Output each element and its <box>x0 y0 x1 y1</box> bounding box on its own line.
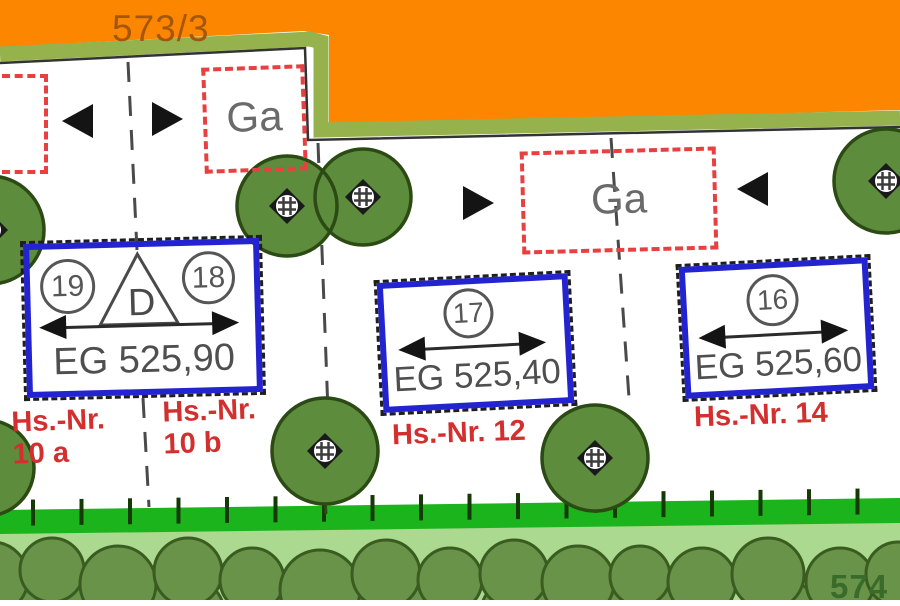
building-window-border: 17 EG 525,40 <box>377 273 575 413</box>
house-number-line: 10 a <box>12 436 107 471</box>
floor-elevation-label: EG 525,90 <box>32 336 257 385</box>
plot-number-badge: 16 <box>745 273 800 328</box>
house-number-label-10a: Hs.-Nr. 10 a <box>11 404 107 471</box>
access-arrow-right-icon <box>152 102 183 136</box>
arrow-head-right-icon <box>212 310 240 335</box>
building-window-border: 19 D 18 EG 525,90 <box>23 238 263 398</box>
floor-elevation-label: EG 525,40 <box>387 351 568 400</box>
building-window-house-12: 17 EG 525,40 <box>374 270 578 416</box>
building-window-house-14: 16 EG 525,60 <box>676 254 878 402</box>
plot-number-badge: 19 <box>39 258 95 314</box>
building-window-border: 16 EG 525,60 <box>679 257 875 399</box>
parcel-number-label: 573/3 <box>112 8 210 50</box>
garage-outline-middle: Ga <box>520 146 719 254</box>
building-extent-arrow <box>39 310 240 339</box>
plot-number-badge: 17 <box>442 287 495 340</box>
arrow-shaft <box>47 321 231 329</box>
garage-outline-top: Ga <box>201 64 308 174</box>
site-plan: { "labels": { "parcel_top": "573/3", "pa… <box>0 0 900 600</box>
house-number-line: Hs.-Nr. <box>11 404 106 439</box>
house-number-line: 10 b <box>163 426 258 461</box>
arrow-head-left-icon <box>39 315 67 340</box>
house-number-label-12: Hs.-Nr. 12 <box>391 416 526 453</box>
parcel-number-label-clipped: 574 <box>830 568 888 606</box>
access-arrow-left-icon <box>737 172 768 206</box>
plot-number-badge: 18 <box>181 251 235 305</box>
access-arrow-right-icon <box>463 186 494 220</box>
garage-outline-partial <box>0 74 48 174</box>
building-window-house-10: 19 D 18 EG 525,90 <box>20 235 266 401</box>
house-number-line: Hs.-Nr. <box>162 394 257 429</box>
house-number-label-10b: Hs.-Nr. 10 b <box>162 394 258 461</box>
garage-label: Ga <box>524 172 713 225</box>
floor-elevation-label: EG 525,60 <box>689 339 868 388</box>
access-arrow-left-icon <box>62 104 93 138</box>
plan-overlay: 573/3 Ga Ga 19 D 18 EG 525,90 <box>0 0 900 600</box>
house-number-label-14: Hs.-Nr. 14 <box>693 398 828 435</box>
garage-label: Ga <box>206 91 303 142</box>
